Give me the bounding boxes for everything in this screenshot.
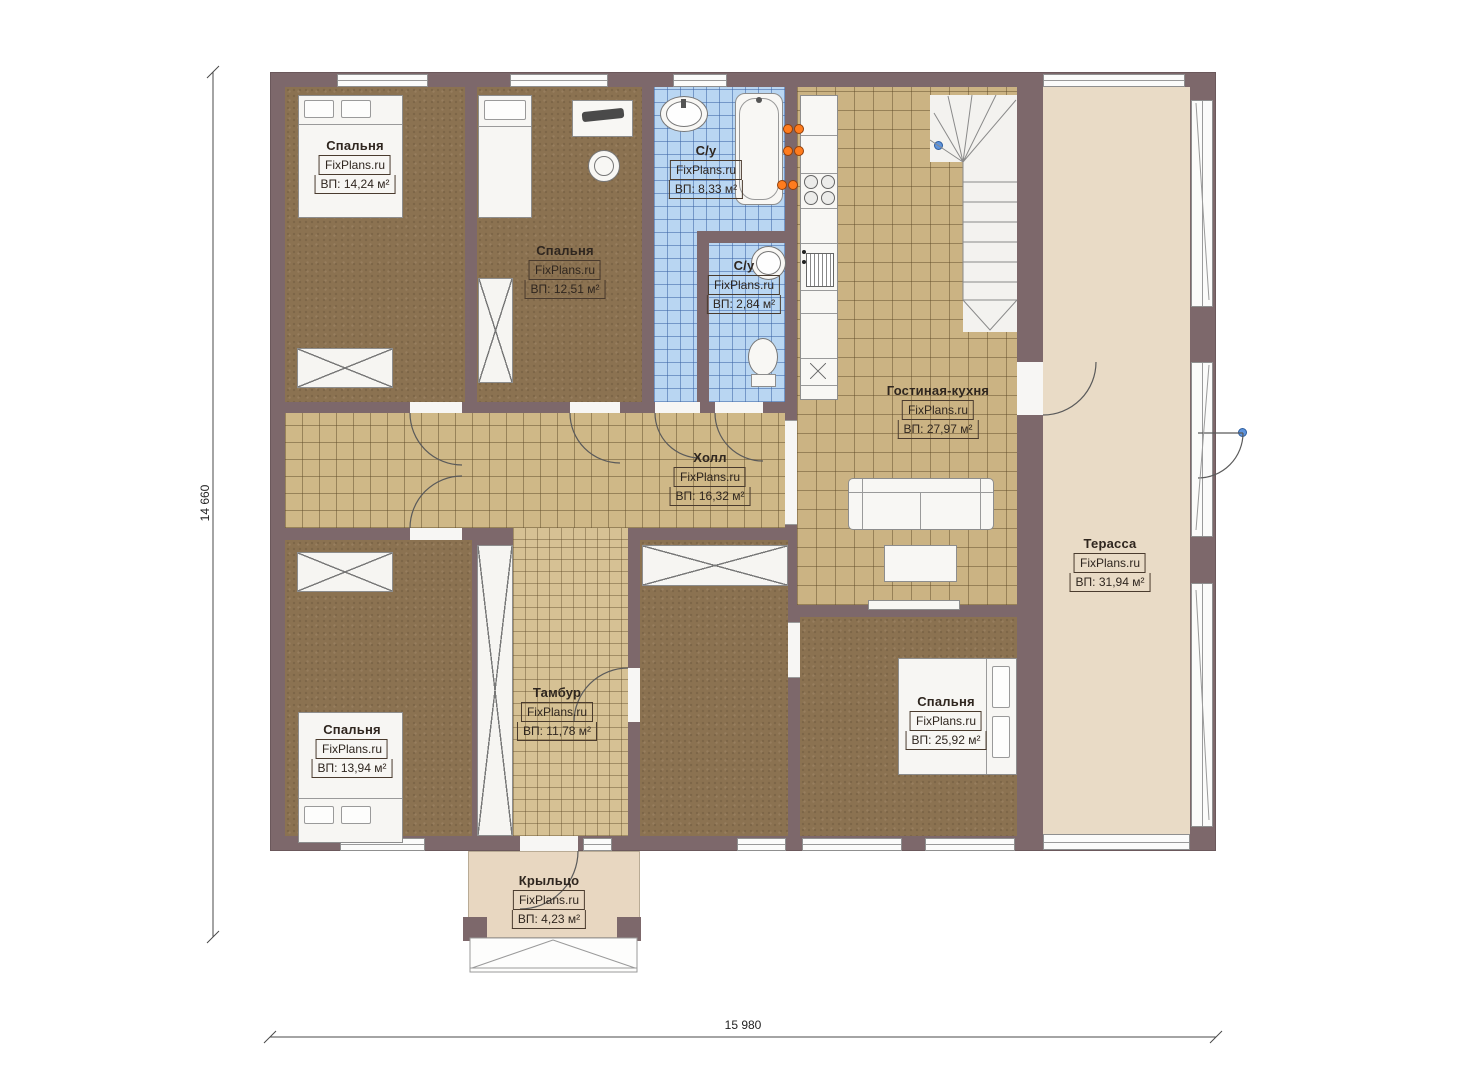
- faucet-icon: [681, 99, 686, 108]
- bathtub-inner: [739, 98, 779, 200]
- pillow: [484, 100, 526, 120]
- floor-plan-page: Спальня FixPlans.ru ВП: 14,24 м² Спальня…: [0, 0, 1474, 1080]
- room-area: ВП: 25,92 м²: [906, 731, 987, 750]
- room-name: Холл: [693, 450, 726, 465]
- room-label-vestibule: Тамбур FixPlans.ru ВП: 11,78 м²: [517, 685, 597, 741]
- room-label-bedroom-t2: Спальня FixPlans.ru ВП: 12,51 м²: [525, 243, 606, 299]
- wardrobe-br: [642, 545, 788, 586]
- brand-watermark: FixPlans.ru: [910, 711, 982, 731]
- door-gap-bath-main: [655, 402, 700, 413]
- stove-burner-icon: [804, 175, 818, 189]
- room-name: Спальня: [536, 243, 594, 258]
- door-gap-bedroom-bl: [410, 528, 462, 540]
- sofa: [848, 478, 994, 530]
- room-area: ВП: 12,51 м²: [525, 280, 606, 299]
- room-name: Тамбур: [533, 685, 581, 700]
- counter-line: [801, 290, 837, 291]
- fridge-icon: [806, 253, 834, 287]
- door-gap-bath-small: [715, 402, 763, 413]
- knob: [802, 260, 806, 264]
- wardrobe-tl: [297, 348, 393, 388]
- door-gap-entrance: [520, 836, 578, 851]
- blanket-line: [299, 124, 402, 125]
- stool-seat: [594, 156, 614, 176]
- opening-bedroom-br: [788, 622, 800, 678]
- room-label-bedroom-bl: Спальня FixPlans.ru ВП: 13,94 м²: [312, 722, 393, 778]
- window-bedroom-tl: [337, 74, 428, 87]
- marker-dot: [546, 963, 555, 972]
- terrace-glazing-1: [1191, 100, 1213, 307]
- room-name: Спальня: [917, 694, 975, 709]
- bath-partition-wall-v: [697, 231, 709, 402]
- room-area: ВП: 13,94 м²: [312, 759, 393, 778]
- knob: [802, 250, 806, 254]
- counter-line: [801, 243, 837, 244]
- room-label-living-kitchen: Гостиная-кухня FixPlans.ru ВП: 27,97 м²: [887, 383, 989, 439]
- stairs-winder: [930, 95, 1017, 162]
- room-label-bedroom-br: Спальня FixPlans.ru ВП: 25,92 м²: [906, 694, 987, 750]
- sofa-armrest: [862, 479, 863, 529]
- sofa-back-line: [849, 492, 993, 493]
- pillow: [341, 100, 371, 118]
- blanket-line: [299, 798, 402, 799]
- kitchen-sink-icon: [810, 363, 826, 379]
- room-area: ВП: 31,94 м²: [1070, 573, 1151, 592]
- hall-vestibule-opening: [513, 528, 628, 540]
- window-terrace-top: [1043, 74, 1185, 87]
- pillow: [992, 716, 1010, 758]
- room-name: Гостиная-кухня: [887, 383, 989, 398]
- dimension-left: 14 660: [198, 473, 212, 533]
- window-vestibule-side: [583, 838, 612, 851]
- counter-line: [801, 313, 837, 314]
- door-gap-bedroom-tl: [410, 402, 462, 413]
- sofa-armrest: [980, 479, 981, 529]
- room-label-bedroom-tl: Спальня FixPlans.ru ВП: 14,24 м²: [315, 138, 396, 194]
- room-area: ВП: 11,78 м²: [517, 722, 597, 741]
- window-br-1: [802, 838, 902, 851]
- room-terrace-floor: [1043, 87, 1190, 836]
- bathtub-drain: [756, 97, 762, 103]
- sofa-divider: [920, 493, 921, 529]
- room-name: Крыльцо: [519, 873, 580, 888]
- pillow: [304, 100, 334, 118]
- coffee-table: [884, 545, 957, 582]
- wardrobe-t2: [478, 278, 513, 383]
- stove-burner-icon: [821, 175, 835, 189]
- terrace-glazing-2: [1191, 362, 1213, 537]
- porch-pillar: [463, 917, 487, 941]
- room-label-bath-main: С/у FixPlans.ru ВП: 8,33 м²: [669, 143, 743, 199]
- terrace-glazing-3: [1191, 583, 1213, 827]
- room-area: ВП: 2,84 м²: [707, 295, 781, 314]
- room-area: ВП: 4,23 м²: [512, 910, 586, 929]
- porch-pillar: [617, 917, 641, 941]
- counter-line: [801, 173, 837, 174]
- marker-dot: [1238, 428, 1247, 437]
- room-area: ВП: 27,97 м²: [898, 420, 979, 439]
- window-br-left: [737, 838, 786, 851]
- room-label-bath-small: С/у FixPlans.ru ВП: 2,84 м²: [707, 258, 781, 314]
- marker-dot: [934, 141, 943, 150]
- brand-watermark: FixPlans.ru: [319, 155, 391, 175]
- pillow: [304, 806, 334, 824]
- room-label-porch: Крыльцо FixPlans.ru ВП: 4,23 м²: [512, 873, 586, 929]
- sconce-icon: [783, 124, 804, 134]
- room-label-terrace: Терасса FixPlans.ru ВП: 31,94 м²: [1070, 536, 1151, 592]
- room-area: ВП: 8,33 м²: [669, 180, 743, 199]
- stove-burner-icon: [821, 191, 835, 205]
- counter-line: [801, 135, 837, 136]
- blanket-line: [479, 126, 531, 127]
- toilet-icon: [748, 338, 778, 376]
- room-name: С/у: [696, 143, 717, 158]
- door-gap-terrace: [1017, 362, 1043, 415]
- stairs-flight: [963, 162, 1017, 332]
- kitchen-counter: [800, 95, 838, 400]
- room-area: ВП: 16,32 м²: [670, 487, 751, 506]
- brand-watermark: FixPlans.ru: [529, 260, 601, 280]
- window-terrace-bottom: [1043, 834, 1190, 850]
- room-name: Спальня: [323, 722, 381, 737]
- counter-line: [801, 385, 837, 386]
- brand-watermark: FixPlans.ru: [521, 702, 593, 722]
- sconce-icon: [783, 146, 804, 156]
- bath-partition-wall-h: [697, 231, 785, 243]
- brand-watermark: FixPlans.ru: [674, 467, 746, 487]
- brand-watermark: FixPlans.ru: [513, 890, 585, 910]
- door-gap-br-left: [628, 668, 640, 722]
- dimension-bottom: 15 980: [693, 1018, 793, 1032]
- stove-burner-icon: [804, 191, 818, 205]
- toilet-tank: [751, 374, 776, 387]
- window-br-2: [925, 838, 1015, 851]
- window-bath: [673, 74, 727, 87]
- room-name: Спальня: [326, 138, 384, 153]
- room-name: С/у: [734, 258, 755, 273]
- closet-vestibule: [477, 545, 513, 836]
- counter-line: [801, 208, 837, 209]
- tv-console: [868, 600, 960, 610]
- room-area: ВП: 14,24 м²: [315, 175, 396, 194]
- wardrobe-bl: [297, 552, 393, 592]
- brand-watermark: FixPlans.ru: [1074, 553, 1146, 573]
- room-name: Терасса: [1084, 536, 1137, 551]
- brand-watermark: FixPlans.ru: [316, 739, 388, 759]
- room-label-hall: Холл FixPlans.ru ВП: 16,32 м²: [670, 450, 751, 506]
- opening-hall-living: [785, 420, 797, 525]
- door-gap-bedroom-t2: [570, 402, 620, 413]
- pillow: [341, 806, 371, 824]
- counter-line: [801, 358, 837, 359]
- pillow: [992, 666, 1010, 708]
- window-bedroom-t2: [510, 74, 608, 87]
- brand-watermark: FixPlans.ru: [708, 275, 780, 295]
- brand-watermark: FixPlans.ru: [902, 400, 974, 420]
- brand-watermark: FixPlans.ru: [670, 160, 742, 180]
- sconce-icon: [777, 180, 798, 190]
